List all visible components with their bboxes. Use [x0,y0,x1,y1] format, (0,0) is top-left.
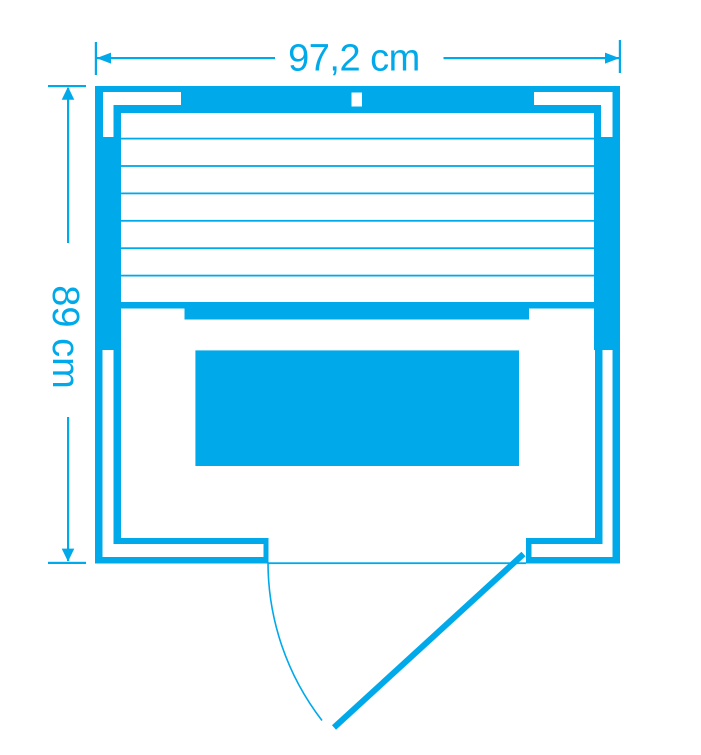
svg-text:89 cm: 89 cm [44,285,86,388]
svg-text:97,2 cm: 97,2 cm [288,37,420,79]
